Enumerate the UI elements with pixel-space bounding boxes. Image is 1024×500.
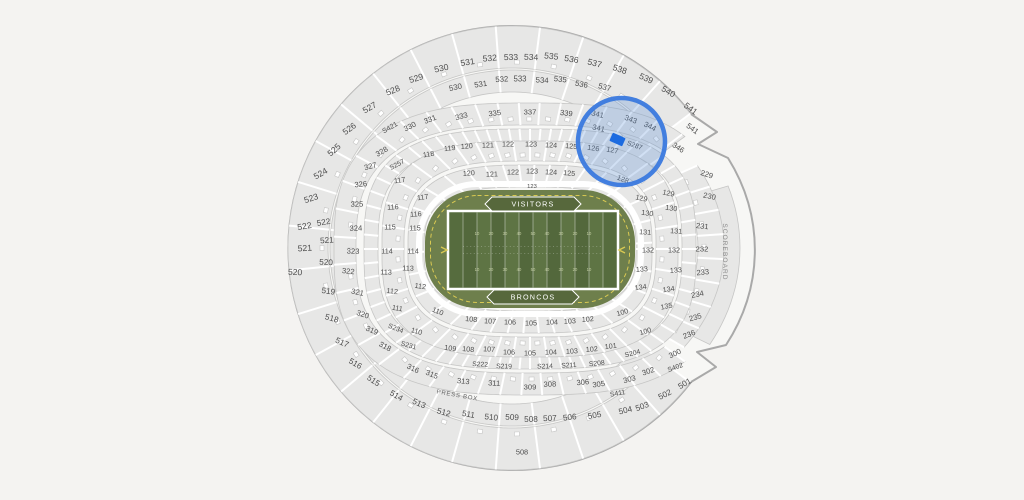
section-label-533[interactable]: 533 [513,75,526,84]
section-label-124[interactable]: 124 [545,140,557,150]
svg-text:10: 10 [475,231,480,236]
section-label-323[interactable]: 323 [347,246,360,255]
section-label-309[interactable]: 309 [524,383,537,392]
section-label-121[interactable]: 121 [486,169,498,178]
section-label-520[interactable]: 520 [319,258,333,267]
section-label-114[interactable]: 114 [407,247,418,256]
section-label-116[interactable]: 116 [387,202,399,212]
section-label-113[interactable]: 113 [380,267,392,276]
svg-text:10: 10 [587,267,592,272]
section-label-121[interactable]: 121 [482,140,494,149]
section-label-134[interactable]: 134 [634,282,647,293]
section-label-531[interactable]: 531 [474,79,488,90]
section-label-105[interactable]: 105 [525,319,537,328]
svg-text:50: 50 [531,267,536,272]
section-label-123[interactable]: 123 [525,139,537,148]
svg-text:20: 20 [573,231,578,236]
section-label-533[interactable]: 533 [504,52,519,62]
svg-text:30: 30 [503,231,508,236]
section-label-120[interactable]: 120 [463,168,476,178]
section-label-102[interactable]: 102 [581,314,594,324]
section-label-308[interactable]: 308 [543,379,556,388]
section-label-117[interactable]: 117 [416,192,429,203]
section-label-313[interactable]: 313 [456,376,470,386]
broncos-banner-label: BRONCOS [511,293,556,302]
section-label-506[interactable]: 506 [562,412,577,422]
section-label-510[interactable]: 510 [484,412,499,422]
section-label-131[interactable]: 131 [639,227,652,237]
section-label-535[interactable]: 535 [544,50,560,61]
svg-text:40: 40 [545,267,550,272]
section-label-120[interactable]: 120 [460,141,473,151]
section-label-509[interactable]: 509 [505,413,519,422]
section-label-111[interactable]: 111 [391,303,403,314]
section-label-325[interactable]: 325 [351,200,364,209]
svg-text:30: 30 [559,231,564,236]
svg-text:20: 20 [573,267,578,272]
svg-text:20: 20 [489,231,494,236]
section-label-134[interactable]: 134 [662,284,675,295]
section-label-532[interactable]: 532 [482,52,497,63]
section-label-115[interactable]: 115 [409,224,420,233]
section-label-113[interactable]: 113 [402,263,414,272]
section-label-508[interactable]: 508 [516,448,528,457]
seat-map-stage: 101020203030404050504040303020201010VISI… [0,0,1024,500]
section-label-103[interactable]: 103 [564,316,576,326]
section-label-521[interactable]: 521 [297,243,312,254]
svg-text:40: 40 [545,231,550,236]
svg-text:40: 40 [517,231,522,236]
section-label-123[interactable]: 123 [527,184,537,190]
section-label-112[interactable]: 112 [414,281,427,292]
section-label-107[interactable]: 107 [484,316,496,326]
svg-text:10: 10 [475,267,480,272]
section-label-102[interactable]: 102 [585,344,598,354]
section-label-521[interactable]: 521 [320,235,335,245]
section-label-123[interactable]: 123 [526,166,538,175]
section-label-130[interactable]: 130 [665,203,678,214]
section-label-S211[interactable]: S211 [561,362,577,370]
section-label-106[interactable]: 106 [503,347,515,356]
svg-text:50: 50 [531,231,536,236]
section-label-S222[interactable]: S222 [472,361,488,369]
section-label-124[interactable]: 124 [545,167,557,177]
section-label-103[interactable]: 103 [566,346,578,356]
section-label-535[interactable]: 535 [553,74,568,85]
section-label-130[interactable]: 130 [641,208,654,219]
section-label-233[interactable]: 233 [696,267,710,277]
section-label-125[interactable]: 125 [563,168,576,178]
section-label-S214[interactable]: S214 [537,363,553,370]
section-label-339[interactable]: 339 [559,108,573,118]
section-label-335[interactable]: 335 [488,108,502,118]
visitors-banner-label: VISITORS [511,200,554,209]
section-label-305[interactable]: 305 [592,379,606,390]
section-label-115[interactable]: 115 [384,223,395,232]
section-label-311[interactable]: 311 [488,378,501,388]
section-label-133[interactable]: 133 [636,264,649,274]
section-label-306[interactable]: 306 [576,377,589,387]
section-label-132[interactable]: 132 [642,246,654,255]
svg-text:30: 30 [559,267,564,272]
section-label-101[interactable]: 101 [604,341,617,351]
scoreboard-label: SCOREBOARD [721,223,728,280]
section-label-520[interactable]: 520 [288,267,303,278]
section-label-132[interactable]: 132 [668,246,680,255]
football-field: 101020203030404050504040303020201010VISI… [419,184,641,314]
section-label-122[interactable]: 122 [507,168,519,177]
section-label-112[interactable]: 112 [386,286,398,296]
section-label-106[interactable]: 106 [504,317,516,326]
section-label-131[interactable]: 131 [670,226,683,236]
section-label-108[interactable]: 108 [462,344,475,354]
section-label-114[interactable]: 114 [381,247,392,256]
section-label-122[interactable]: 122 [502,140,514,149]
section-label-507[interactable]: 507 [543,414,557,423]
section-label-534[interactable]: 534 [535,75,549,85]
section-label-125[interactable]: 125 [565,141,578,151]
section-label-119[interactable]: 119 [443,143,455,153]
section-label-104[interactable]: 104 [545,347,557,356]
section-label-104[interactable]: 104 [546,317,558,326]
section-label-326[interactable]: 326 [354,179,368,189]
section-label-117[interactable]: 117 [393,175,406,186]
svg-text:40: 40 [517,267,522,272]
stadium-seat-map[interactable]: 101020203030404050504040303020201010VISI… [0,0,1024,500]
section-label-534[interactable]: 534 [524,52,539,63]
svg-text:20: 20 [489,267,494,272]
svg-text:30: 30 [503,267,508,272]
section-label-232[interactable]: 232 [696,245,709,254]
section-label-108[interactable]: 108 [465,314,478,324]
section-label-231[interactable]: 231 [695,221,709,231]
svg-text:10: 10 [587,231,592,236]
section-label-105[interactable]: 105 [524,349,536,358]
section-label-109[interactable]: 109 [444,343,457,354]
section-label-322[interactable]: 322 [341,266,355,276]
section-label-S219[interactable]: S219 [496,363,512,370]
section-label-337[interactable]: 337 [524,108,537,117]
section-label-324[interactable]: 324 [349,223,362,232]
section-label-532[interactable]: 532 [495,74,509,84]
section-label-107[interactable]: 107 [483,344,495,354]
section-label-116[interactable]: 116 [410,209,422,219]
section-label-508[interactable]: 508 [524,415,538,424]
section-label-133[interactable]: 133 [670,265,683,275]
